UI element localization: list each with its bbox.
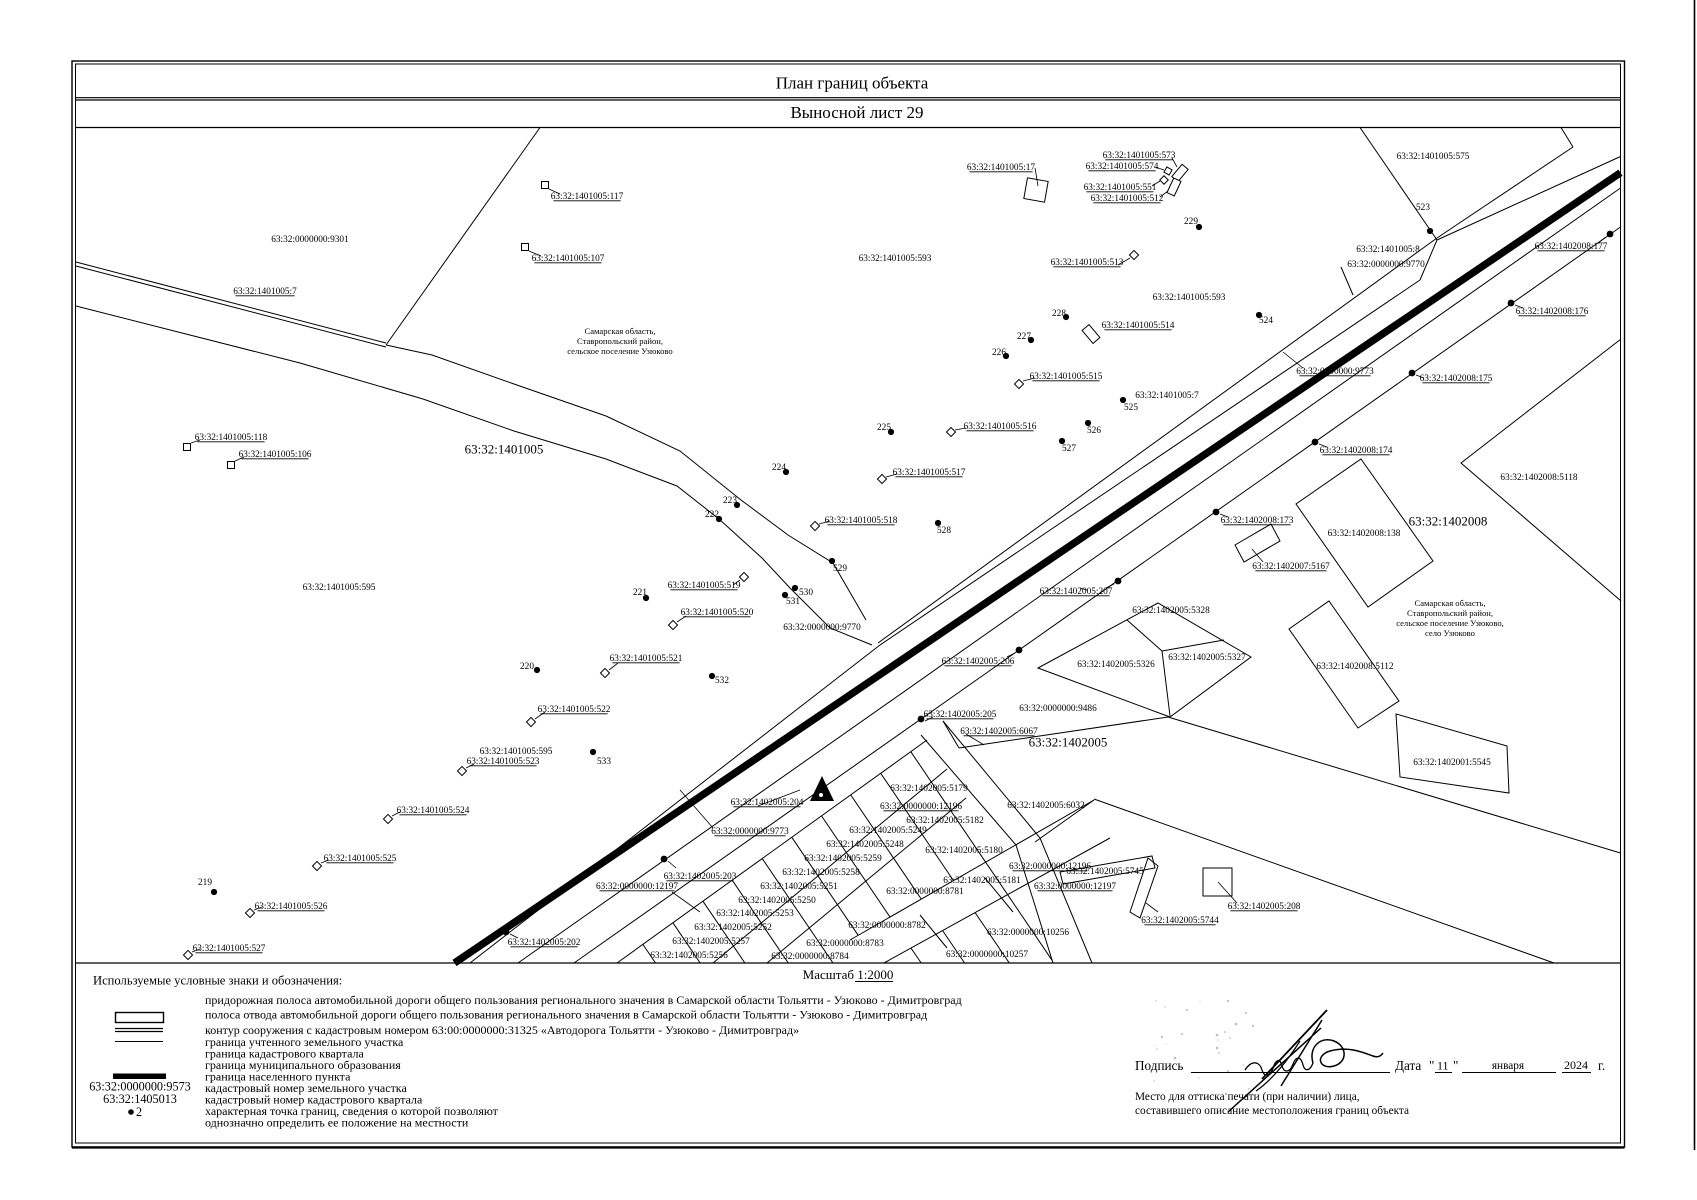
- svg-text:Ставропольский район,: Ставропольский район,: [1407, 608, 1493, 618]
- svg-text:63:32:1402005:6032: 63:32:1402005:6032: [1007, 801, 1085, 811]
- svg-text:63:32:1402005:5259: 63:32:1402005:5259: [804, 854, 882, 864]
- svg-text:Самарская область,: Самарская область,: [584, 326, 655, 336]
- svg-text:": ": [1453, 1058, 1458, 1073]
- svg-text:63:32:1402005:5182: 63:32:1402005:5182: [906, 816, 984, 826]
- svg-text:2024: 2024: [1564, 1058, 1588, 1072]
- svg-text:63:32:1402005:5181: 63:32:1402005:5181: [943, 876, 1021, 886]
- svg-text:532: 532: [715, 676, 729, 686]
- svg-text:63:32:1401005:595: 63:32:1401005:595: [480, 747, 553, 757]
- svg-text:63:32:1405013: 63:32:1405013: [103, 1092, 177, 1106]
- svg-text:63:32:1402008: 63:32:1402008: [1409, 513, 1488, 528]
- svg-text:63:32:1402008:5118: 63:32:1402008:5118: [1500, 473, 1577, 483]
- svg-text:528: 528: [937, 526, 951, 536]
- svg-text:63:32:1402005:5258: 63:32:1402005:5258: [782, 868, 860, 878]
- svg-text:сельское поселение Узюково,: сельское поселение Узюково,: [1396, 618, 1504, 628]
- svg-text:2: 2: [136, 1105, 142, 1119]
- svg-text:63:32:0000000:10256: 63:32:0000000:10256: [987, 928, 1069, 938]
- svg-text:63:32:1402008:138: 63:32:1402008:138: [1328, 529, 1401, 539]
- svg-text:63:32:1402001:5545: 63:32:1402001:5545: [1413, 758, 1491, 768]
- svg-text:63:32:0000000:9770: 63:32:0000000:9770: [783, 623, 861, 633]
- svg-text:229: 229: [1184, 217, 1198, 227]
- svg-text:529: 529: [833, 564, 847, 574]
- svg-text:63:32:1401005:8: 63:32:1401005:8: [1356, 245, 1420, 255]
- svg-text:63:32:0000000:9301: 63:32:0000000:9301: [271, 235, 349, 245]
- svg-text:Выносной лист 29: Выносной лист 29: [790, 103, 923, 122]
- svg-text:63:32:1402005:5326: 63:32:1402005:5326: [1077, 660, 1155, 670]
- svg-text:523: 523: [1416, 203, 1430, 213]
- svg-text:526: 526: [1087, 426, 1101, 436]
- svg-text:Подпись: Подпись: [1135, 1058, 1183, 1073]
- svg-text:63:32:1402005:5257: 63:32:1402005:5257: [672, 937, 750, 947]
- svg-text:531: 531: [786, 597, 800, 607]
- svg-text:сельское поселение Узюково: сельское поселение Узюково: [567, 346, 672, 356]
- svg-text:63:32:1402005:5745: 63:32:1402005:5745: [1066, 867, 1144, 877]
- svg-text:63:32:1401005:575: 63:32:1401005:575: [1397, 152, 1470, 162]
- svg-text:63:32:1401005:593: 63:32:1401005:593: [859, 254, 932, 264]
- svg-text:полоса отвода автомобильной до: полоса отвода автомобильной дороги общег…: [205, 1008, 927, 1022]
- svg-text:село Узюково: село Узюково: [1425, 628, 1475, 638]
- svg-text:63:32:1402005:5248: 63:32:1402005:5248: [826, 840, 904, 850]
- svg-text:527: 527: [1062, 444, 1076, 454]
- svg-text:января: января: [1492, 1060, 1524, 1072]
- svg-text:63:32:1402005:5256: 63:32:1402005:5256: [650, 951, 728, 961]
- svg-text:63:32:0000000:9486: 63:32:0000000:9486: [1019, 704, 1097, 714]
- svg-text:63:32:1402005: 63:32:1402005: [1029, 734, 1108, 749]
- svg-text:составившего описание местопол: составившего описание местоположения гра…: [1135, 1105, 1409, 1117]
- svg-text:Масштаб 1:2000: Масштаб 1:2000: [803, 967, 894, 982]
- svg-text:63:32:1402008:5112: 63:32:1402008:5112: [1316, 662, 1393, 672]
- svg-text:63:32:1402005:5179: 63:32:1402005:5179: [890, 784, 968, 794]
- svg-text:63:32:0000000:8782: 63:32:0000000:8782: [848, 921, 926, 931]
- svg-text:533: 533: [597, 757, 611, 767]
- svg-text:63:32:1401005:7: 63:32:1401005:7: [1135, 391, 1199, 401]
- svg-text:г.: г.: [1598, 1058, 1605, 1073]
- svg-text:Место для оттиска печати (при: Место для оттиска печати (при наличии) л…: [1135, 1091, 1360, 1103]
- svg-text:63:32:1402005:5180: 63:32:1402005:5180: [925, 846, 1003, 856]
- svg-text:63:32:1402005:5327: 63:32:1402005:5327: [1168, 653, 1246, 663]
- svg-text:63:32:1402005:5252: 63:32:1402005:5252: [694, 923, 772, 933]
- svg-text:219: 219: [198, 878, 212, 888]
- svg-text:63:32:1402005:5328: 63:32:1402005:5328: [1132, 606, 1210, 616]
- svg-text:План границ объекта: План границ объекта: [776, 73, 929, 92]
- svg-text:63:32:0000000:9770: 63:32:0000000:9770: [1347, 260, 1425, 270]
- svg-text:63:32:0000000:8784: 63:32:0000000:8784: [771, 952, 849, 962]
- svg-text:63:32:1402005:5251: 63:32:1402005:5251: [760, 882, 838, 892]
- svg-text:придорожная полоса автомобильн: придорожная полоса автомобильной дороги …: [205, 993, 962, 1007]
- svg-text:": ": [1429, 1058, 1434, 1073]
- svg-text:63:32:1402005:5253: 63:32:1402005:5253: [716, 909, 794, 919]
- svg-text:524: 524: [1259, 316, 1273, 326]
- svg-text:63:32:1401005: 63:32:1401005: [465, 441, 544, 456]
- svg-text:11: 11: [1437, 1059, 1449, 1073]
- svg-text:Используемые условные знаки и: Используемые условные знаки и обозначени…: [93, 973, 342, 987]
- svg-text:63:32:0000000:10257: 63:32:0000000:10257: [946, 950, 1028, 960]
- svg-text:63:32:0000000:8783: 63:32:0000000:8783: [806, 939, 884, 949]
- svg-text:Ставропольский район,: Ставропольский район,: [577, 336, 663, 346]
- svg-text:63:32:1401005:593: 63:32:1401005:593: [1153, 293, 1226, 303]
- svg-text:63:32:1402005:5249: 63:32:1402005:5249: [849, 826, 927, 836]
- svg-text:220: 220: [520, 662, 534, 672]
- svg-text:63:32:1401005:595: 63:32:1401005:595: [303, 583, 376, 593]
- svg-text:63:32:1402005:5250: 63:32:1402005:5250: [738, 896, 816, 906]
- svg-text:525: 525: [1124, 403, 1138, 413]
- svg-text:530: 530: [799, 588, 813, 598]
- svg-text:63:32:0000000:8781: 63:32:0000000:8781: [886, 887, 964, 897]
- svg-text:Самарская область,: Самарская область,: [1414, 598, 1485, 608]
- svg-text:Дата: Дата: [1395, 1058, 1421, 1073]
- svg-text:однозначно определить ее полож: однозначно определить ее положение на ме…: [205, 1116, 469, 1130]
